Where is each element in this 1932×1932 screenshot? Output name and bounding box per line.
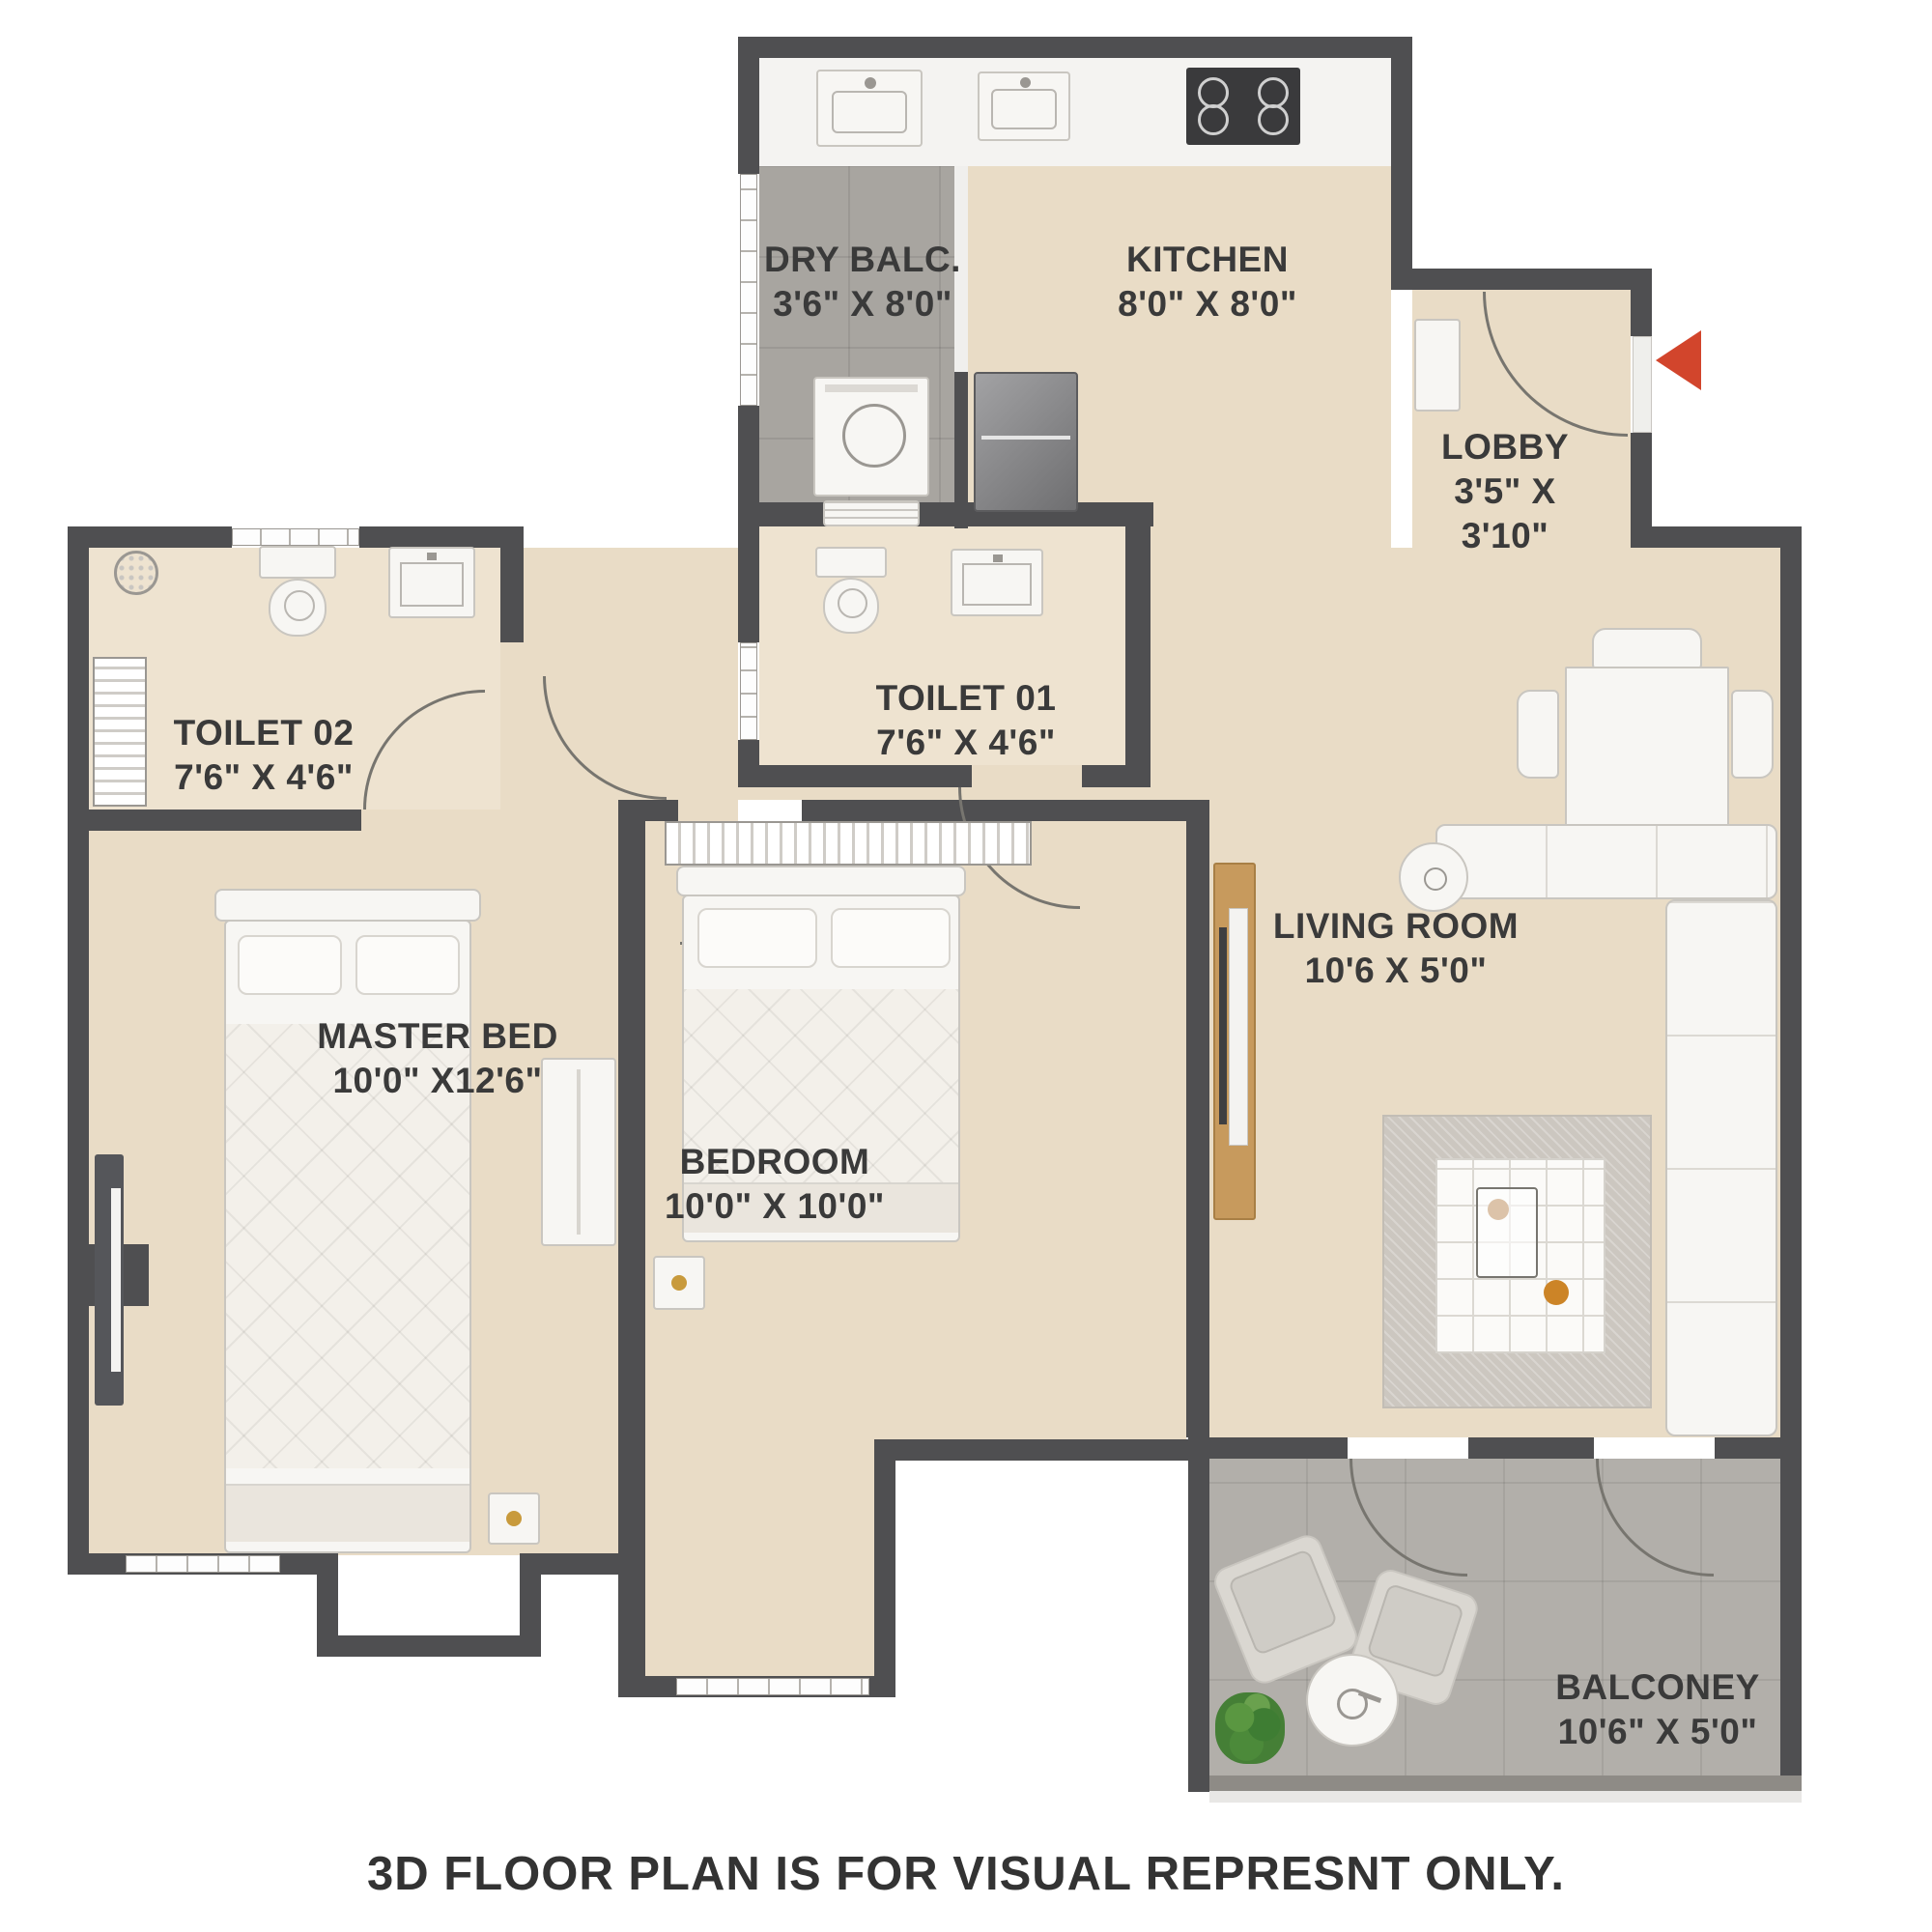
living-balcony-wall-2 — [1468, 1437, 1594, 1459]
bedroom-bay-floor — [645, 1437, 874, 1676]
washing-machine — [813, 377, 929, 497]
dining-table — [1565, 667, 1729, 826]
sofa-horizontal — [1435, 824, 1777, 899]
bedroom-nightstand — [653, 1256, 705, 1310]
toilet-01-bottom-wall-stub — [1082, 765, 1151, 787]
master-dresser — [95, 1154, 124, 1406]
right-wall — [1780, 526, 1802, 1792]
toilet-02-right-wall — [500, 526, 524, 642]
room-dims: 7'6" X 4'6" — [850, 721, 1082, 765]
master-window — [126, 1555, 280, 1573]
room-name: LIVING ROOM — [1270, 904, 1521, 949]
room-name: LOBBY — [1408, 425, 1602, 469]
toilet-01-washbasin — [951, 549, 1043, 616]
toilet-01-wc-bowl — [823, 578, 879, 634]
room-label-master-bedroom: MASTER BED 10'0" X12'6" — [317, 1014, 558, 1103]
entry-threshold — [1633, 336, 1652, 433]
toilet-01-wc — [815, 547, 887, 578]
balcony-left-wall — [1188, 1437, 1209, 1792]
room-dims: 3'6" X 8'0" — [761, 282, 964, 327]
sink-dry-balcony — [816, 70, 923, 147]
kitchen-right-wall — [1391, 37, 1412, 290]
fridge — [974, 372, 1078, 512]
room-label-toilet-02: TOILET 02 7'6" X 4'6" — [153, 711, 375, 800]
bedroom-bay-window — [676, 1678, 869, 1695]
toilet-01-bottom-wall — [759, 765, 972, 787]
room-name: BALCONEY — [1534, 1665, 1781, 1710]
dining-chair-right — [1731, 690, 1774, 779]
lobby-right-wall-upper — [1631, 290, 1652, 336]
coffee-table — [1435, 1158, 1605, 1353]
floor-plan: DRY BALC. 3'6" X 8'0" KITCHEN 8'0" X 8'0… — [0, 0, 1932, 1932]
room-dims: 10'0" X12'6" — [317, 1059, 558, 1103]
left-wall-upper — [68, 526, 89, 1265]
dryer-vent-box — [823, 500, 920, 526]
bedroom-top-wall-left — [618, 800, 678, 821]
bedroom-living-divider-wall — [1186, 800, 1209, 1437]
bedroom-wardrobe-band — [665, 821, 1032, 866]
room-name: MASTER BED — [317, 1014, 558, 1059]
toilet-02-washbasin — [388, 547, 475, 618]
disclaimer-text: 3D FLOOR PLAN IS FOR VISUAL REPRESNT ONL… — [0, 1847, 1932, 1901]
toilet-02-window — [232, 528, 359, 546]
bedroom-bed-headboard — [676, 866, 966, 896]
toilet-02-top-wall-right — [359, 526, 524, 548]
balcony-table — [1306, 1654, 1399, 1747]
master-nightstand — [488, 1492, 540, 1545]
toilet-01-top-wall — [738, 502, 1153, 526]
room-name: KITCHEN — [1101, 238, 1314, 282]
top-wall — [753, 37, 1410, 58]
side-table-round — [1399, 842, 1468, 912]
sofa-vertical — [1665, 899, 1777, 1436]
toilet-02-bottom-wall — [89, 810, 361, 831]
room-label-lobby: LOBBY 3'5" X 3'10" — [1408, 425, 1602, 558]
sink-kitchen — [978, 71, 1070, 141]
lobby-cabinet — [1414, 319, 1461, 412]
room-label-bedroom: BEDROOM 10'0" X 10'0" — [659, 1140, 891, 1229]
bedroom-bay-right-wall — [874, 1439, 895, 1697]
balcony-parapet — [1209, 1776, 1802, 1791]
room-label-kitchen: KITCHEN 8'0" X 8'0" — [1101, 238, 1314, 327]
room-dims: 7'6" X 4'6" — [153, 755, 375, 800]
plant — [1215, 1692, 1285, 1764]
toilet-02-wc — [259, 546, 336, 579]
living-balcony-wall-1 — [1209, 1437, 1348, 1459]
room-label-living-room: LIVING ROOM 10'6 X 5'0" — [1270, 904, 1521, 993]
room-dims: 10'6" X 5'0" — [1534, 1710, 1781, 1754]
master-wardrobe-nook — [93, 657, 147, 807]
room-dims: 10'0" X 10'0" — [659, 1184, 891, 1229]
toilet-01-window — [740, 642, 757, 740]
master-bed-headboard — [214, 889, 481, 922]
hall-strip-floor — [1151, 526, 1209, 800]
room-label-toilet-01: TOILET 01 7'6" X 4'6" — [850, 676, 1082, 765]
master-bedroom-divider-wall — [618, 800, 645, 1575]
toilet-02-wc-bowl — [269, 579, 327, 637]
room-name: DRY BALC. — [761, 238, 964, 282]
lobby-top-wall — [1391, 269, 1652, 290]
room-dims: 8'0" X 8'0" — [1101, 282, 1314, 327]
dining-chair-left — [1517, 690, 1559, 779]
balcony-sill — [1209, 1791, 1802, 1803]
bedroom-balcony-link-wall — [874, 1439, 1209, 1461]
corridor-floor-3 — [361, 810, 524, 831]
room-name: BEDROOM — [659, 1140, 891, 1184]
room-dims: 3'5" X 3'10" — [1408, 469, 1602, 558]
toilet-01-left-wall-upper — [738, 526, 759, 642]
master-bottom-wall-2 — [520, 1553, 645, 1575]
dry-balcony-left-wall-upper — [738, 37, 759, 174]
living-balcony-wall-3 — [1715, 1437, 1780, 1459]
tv-unit — [1213, 863, 1256, 1220]
left-wall-lower — [68, 1306, 89, 1575]
room-name: TOILET 01 — [850, 676, 1082, 721]
toilet-01-right-wall — [1125, 526, 1151, 787]
toilet-01-left-wall-lower — [738, 740, 759, 787]
room-dims: 10'6 X 5'0" — [1270, 949, 1521, 993]
dining-chair-top — [1592, 628, 1702, 670]
room-name: TOILET 02 — [153, 711, 375, 755]
toilet-02-top-wall-left — [68, 526, 232, 548]
room-label-dry-balcony: DRY BALC. 3'6" X 8'0" — [761, 238, 964, 327]
shower-icon — [114, 551, 158, 595]
stove — [1186, 68, 1300, 145]
entry-arrow-icon — [1656, 330, 1701, 390]
dry-balcony-window — [740, 174, 757, 406]
duct-bottom-wall — [317, 1635, 541, 1657]
room-label-balcony: BALCONEY 10'6" X 5'0" — [1534, 1665, 1781, 1754]
living-top-right-wall — [1631, 526, 1802, 548]
